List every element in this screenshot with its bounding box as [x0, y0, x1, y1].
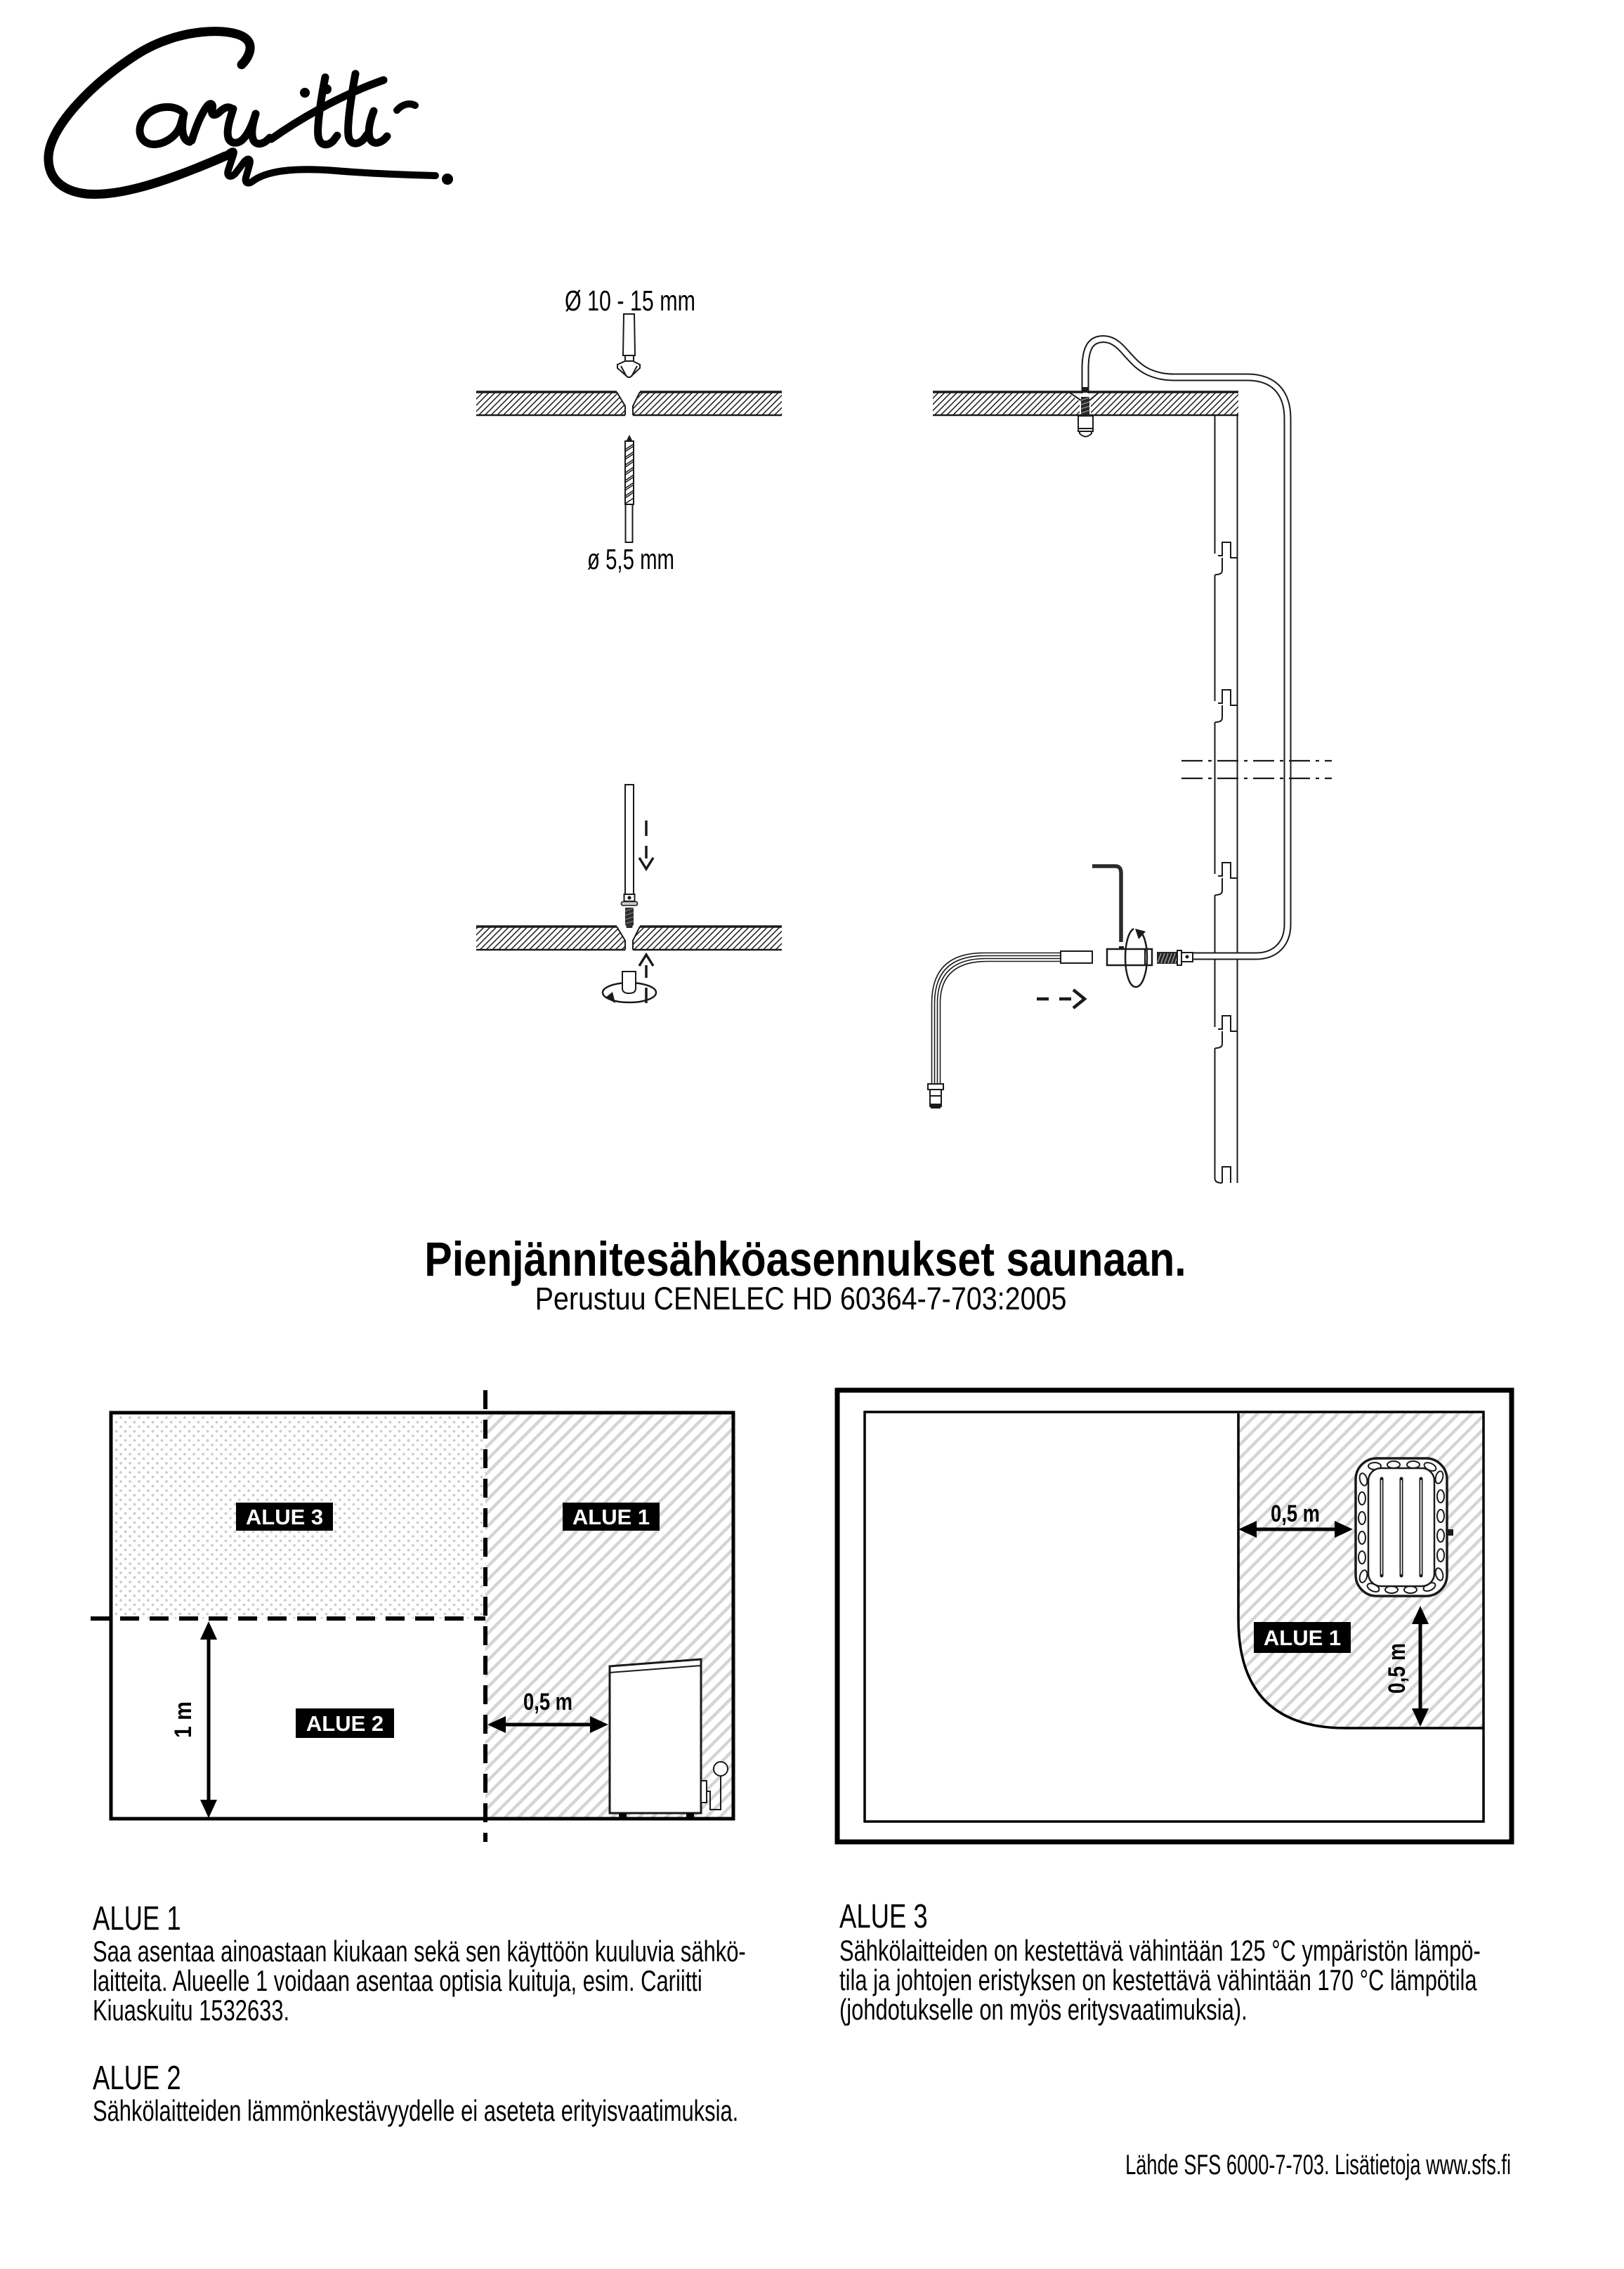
- svg-text:0,5 m: 0,5 m: [523, 1689, 572, 1715]
- svg-text:ALUE 2: ALUE 2: [306, 1711, 384, 1736]
- svg-text:1 m: 1 m: [170, 1701, 197, 1738]
- svg-text:Ø 10 - 15 mm: Ø 10 - 15 mm: [565, 285, 695, 317]
- svg-text:ø 5,5 mm: ø 5,5 mm: [587, 543, 674, 575]
- svg-text:0,5 m: 0,5 m: [1271, 1500, 1320, 1527]
- svg-text:ALUE 1: ALUE 1: [1264, 1626, 1341, 1650]
- svg-text:ALUE 3: ALUE 3: [246, 1505, 323, 1529]
- svg-text:0,5 m: 0,5 m: [1384, 1643, 1410, 1694]
- svg-text:ALUE 1: ALUE 1: [572, 1505, 650, 1529]
